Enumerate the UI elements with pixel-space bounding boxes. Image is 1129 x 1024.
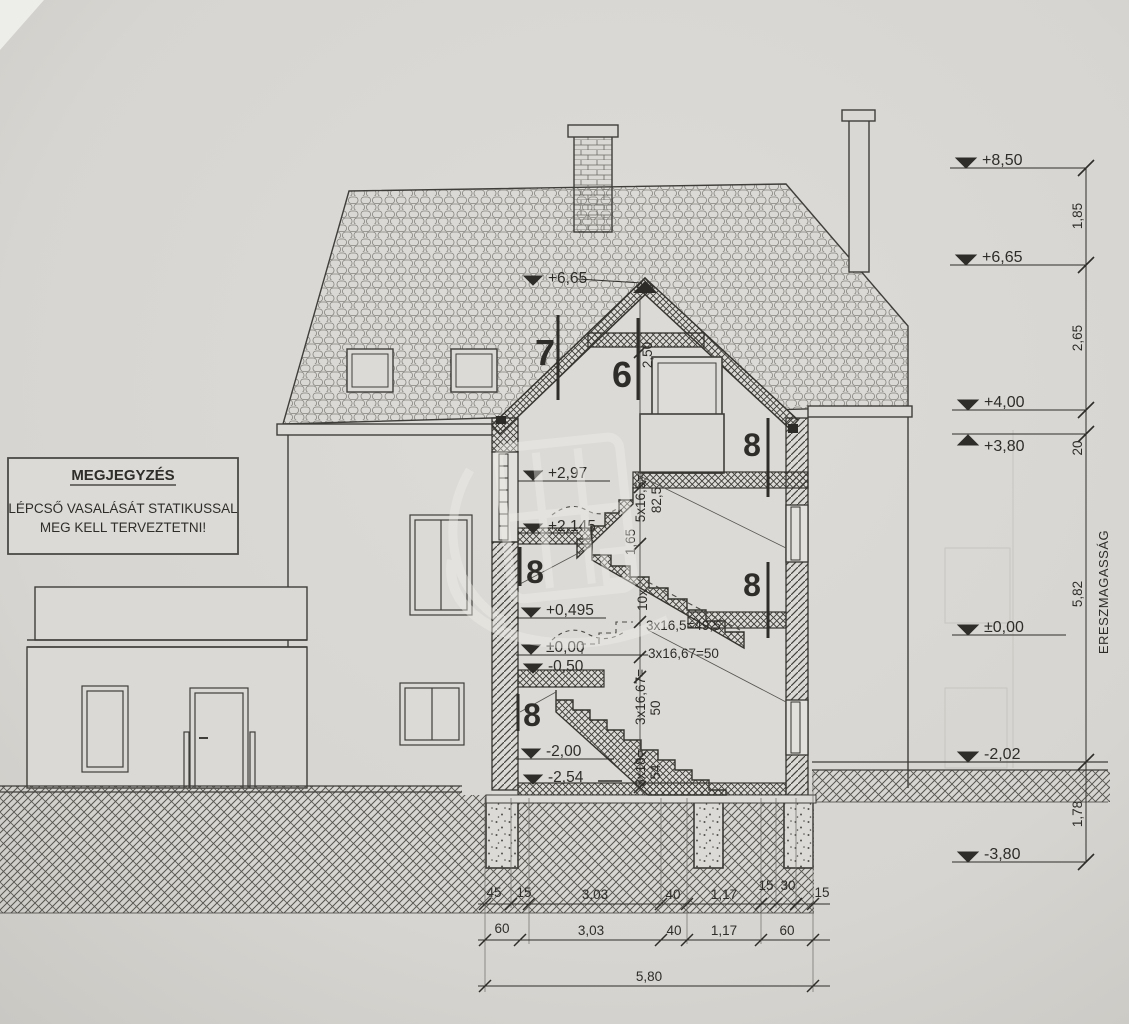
stair-rise-low-eq: 3x16,67= — [633, 669, 648, 725]
dim-b1-15a: 15 — [516, 885, 531, 900]
eave-band-left — [277, 424, 497, 435]
level-minus-254: -2,54 — [548, 769, 584, 786]
dim-b2-303: 3,03 — [578, 923, 604, 938]
foundation-strip — [486, 795, 816, 803]
note-line1: LÉPCSŐ VASALÁSÁT STATIKUSSAL — [8, 501, 238, 516]
stair-rise-low-val: 50 — [648, 700, 663, 715]
dim-b1-45: 45 — [486, 885, 501, 900]
dim-b2-60b: 60 — [779, 923, 794, 938]
scanned-section-drawing: 7 6 8 8 8 8 +6,65 +2,97 +2,145 +0,495 ±0… — [0, 0, 1129, 1024]
dim-b1-15b: 15 — [758, 878, 773, 893]
room-label-8b: 8 — [526, 554, 544, 590]
dim-b2-117: 1,17 — [711, 923, 737, 938]
level-right-380: +3,80 — [984, 438, 1025, 455]
level-right-665: +6,65 — [982, 249, 1023, 266]
note-title: MEGJEGYZÉS — [71, 467, 174, 484]
dim-b1-117: 1,17 — [711, 887, 737, 902]
dim-right-582: 5,82 — [1070, 581, 1085, 607]
level-ridge: +6,65 — [548, 270, 587, 287]
dim-right-265: 2,65 — [1070, 325, 1085, 351]
annex-wall — [27, 647, 307, 788]
stair-run-b: 3x16,67=50 — [648, 646, 719, 661]
eave-band-right — [808, 406, 912, 417]
stair-count-up: 10x — [635, 589, 650, 611]
level-minus-050: -0,50 — [548, 658, 584, 675]
dim-right-20: 20 — [1070, 440, 1085, 455]
attic-height-dim: 2,50 — [640, 342, 655, 368]
level-right-000: ±0,00 — [984, 619, 1024, 636]
level-right-400: +4,00 — [984, 394, 1025, 411]
soil-left — [0, 786, 462, 913]
dim-b2-40: 40 — [666, 923, 681, 938]
dim-b1-40: 40 — [665, 887, 680, 902]
dim-b1-303: 3,03 — [582, 887, 608, 902]
stair-rise-top-val: 82,5 — [649, 487, 664, 513]
stair-rise-base-val: 54 — [648, 764, 663, 780]
soil-right — [812, 770, 1110, 802]
annex-parapet — [35, 587, 307, 640]
level-right-850: +8,50 — [982, 152, 1023, 169]
stair-rise-base-eq: 3x18= — [633, 749, 648, 786]
dim-b1-15c: 15 — [814, 885, 829, 900]
right-wall-window-gap-1 — [786, 505, 808, 562]
room-label-8a: 8 — [743, 427, 761, 463]
stair-rise-top-eq: 5x16,5= — [633, 474, 648, 523]
annex-building — [27, 587, 307, 788]
dim-right-178: 1,78 — [1070, 801, 1085, 827]
room-label-8d: 8 — [523, 697, 541, 733]
level-right-m380: -3,80 — [984, 846, 1021, 863]
eaves-height-label: ERESZMAGASSÁG — [1096, 530, 1111, 654]
note-line2: MEG KELL TERVEZTETNI! — [40, 520, 206, 535]
room-label-8c: 8 — [743, 567, 761, 603]
dim-b2-60a: 60 — [494, 921, 509, 936]
dim-total-580: 5,80 — [636, 969, 662, 984]
roof-window-right — [451, 349, 497, 392]
level-right-m202: -2,02 — [984, 746, 1021, 763]
annex-window — [82, 686, 128, 772]
dim-b1-30: 30 — [780, 878, 795, 893]
drawing-canvas: 7 6 8 8 8 8 +6,65 +2,97 +2,145 +0,495 ±0… — [0, 0, 1129, 1024]
room-label-7: 7 — [535, 332, 555, 373]
right-wall-window-gap-2 — [786, 700, 808, 755]
chimney-left — [568, 125, 618, 232]
dim-right-185: 1,85 — [1070, 203, 1085, 229]
room-label-6: 6 — [612, 354, 632, 395]
wall-window-lower — [400, 683, 464, 745]
level-landing-mid: +0,495 — [546, 602, 594, 619]
balcony-parapet — [640, 414, 724, 473]
roof-window-left — [347, 349, 393, 392]
level-minus-200: -2,00 — [546, 743, 582, 760]
annex-door — [184, 688, 255, 788]
